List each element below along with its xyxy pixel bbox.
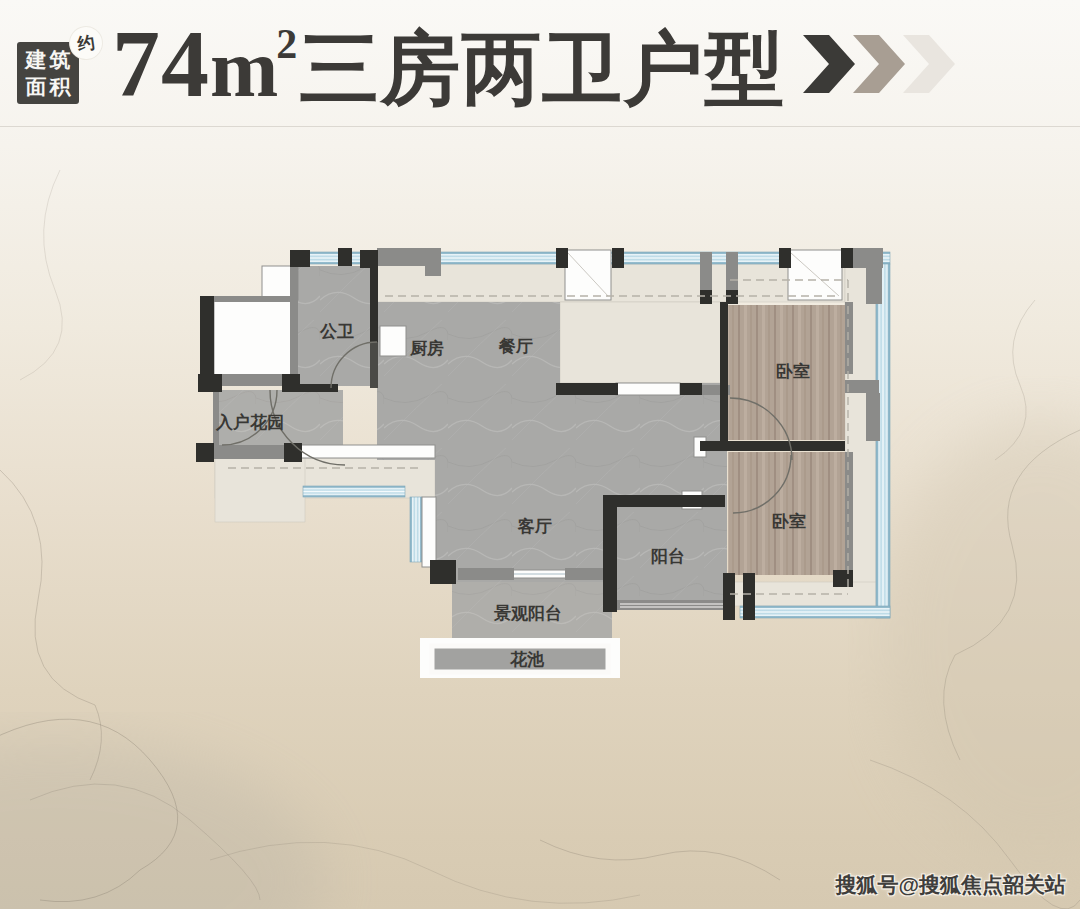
window-left-L-v [410,497,422,562]
window-left-L-h [303,486,405,497]
page: 公卫 厨房 餐厅 入户花园 卧室 卧室 客厅 阳台 景观阳台 花池 建筑 面积 … [0,0,1080,909]
title-text: 三房两卫户型 [299,25,785,113]
bay-dining-right [560,302,727,383]
area-badge-line2: 面积 [17,73,79,100]
watermark: 搜狐号@搜狐焦点韶关站 [836,871,1066,899]
room-label-entry-garden: 入户花园 [215,412,284,432]
door-leaf-bath [370,342,378,388]
room-label-view-balcony: 景观阳台 [493,604,562,623]
title-area-value: 74 [112,10,210,117]
chevron-dark-icon [803,35,855,93]
sill-bath-kitchen [380,326,406,356]
title-area-unit: m [210,23,278,114]
floorplan: 公卫 厨房 餐厅 入户花园 卧室 卧室 客厅 阳台 景观阳台 花池 [0,0,1080,909]
approx-text: 约 [76,30,96,55]
header-divider [0,126,1080,127]
room-label-kitchen: 厨房 [409,339,444,358]
chevron-mid-icon [853,35,905,93]
chevron-light-icon [903,35,955,93]
shaft-outside [214,300,292,376]
pillar-dining-wall [616,383,680,395]
title-area-superscript: 2 [276,21,297,67]
sill-garden-right [300,445,435,458]
window-bottom-wrap [740,606,890,618]
room-label-flower-bed: 花池 [509,650,545,669]
room-label-balcony: 阳台 [651,547,685,566]
chevron-arrows-icon [803,33,963,95]
band-living-left [422,497,436,567]
area-badge-line1: 建筑 [17,46,79,73]
room-label-bath: 公卫 [319,322,354,341]
room-label-bedroom1: 卧室 [776,362,810,381]
room-label-bedroom2: 卧室 [772,512,806,531]
room-label-dining: 餐厅 [498,337,533,356]
area-badge: 建筑 面积 [17,42,79,104]
page-title: 74m2三房两卫户型 [112,8,785,124]
room-label-living: 客厅 [517,517,552,536]
